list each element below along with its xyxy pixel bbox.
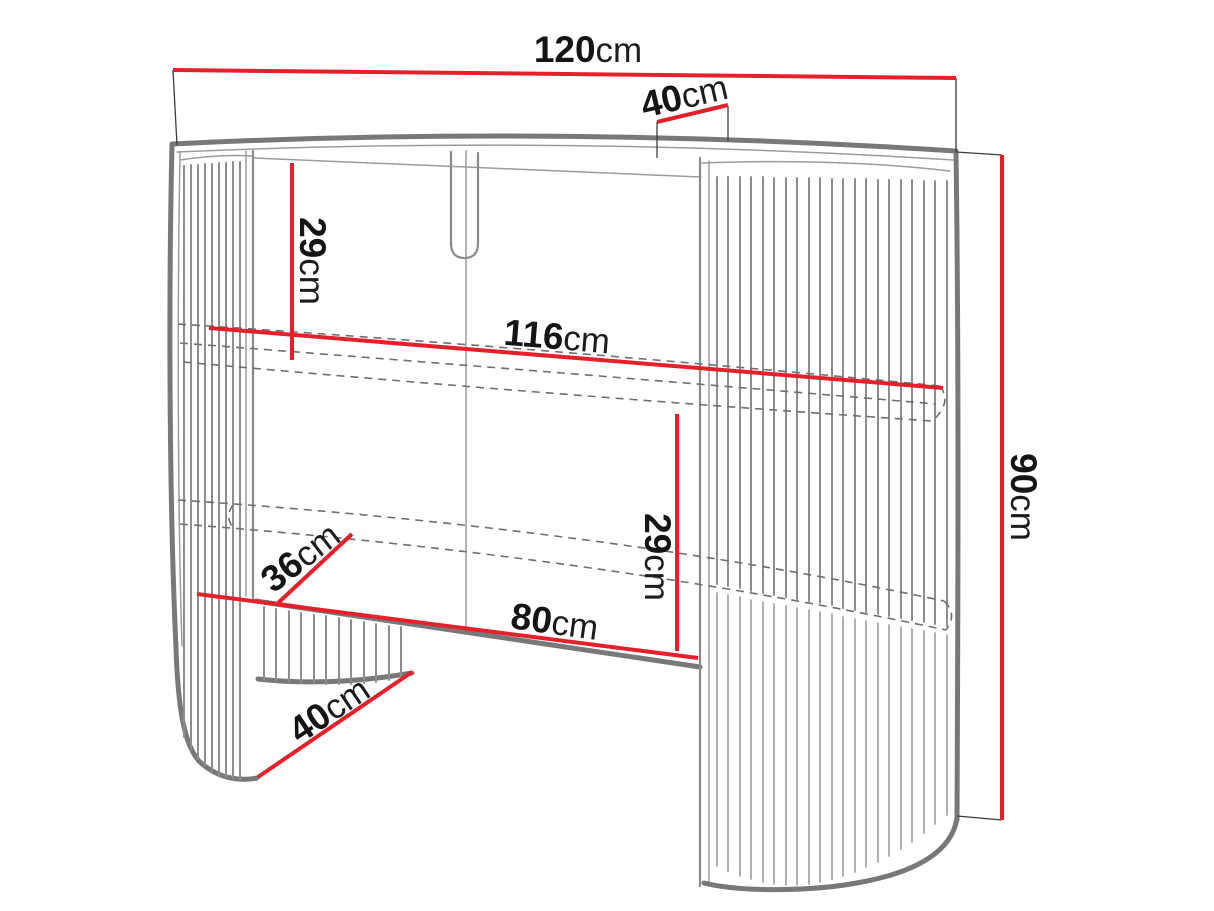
left-panel-inner-edge: [178, 152, 182, 646]
label-niche-height: 29cm: [637, 513, 678, 601]
label-top-width: 120cm: [534, 29, 642, 70]
right-panel-right-edge: [956, 152, 958, 820]
diagram-canvas: 120cm 40cm 29cm 116cm 29cm 36cm 80cm 40c…: [0, 0, 1214, 911]
left-panel-top-rail: [180, 156, 252, 161]
left-panel-slats: [184, 162, 240, 779]
label-overall-height: 90cm: [1003, 453, 1044, 541]
ext-top-width-left: [173, 70, 177, 145]
ext-height-top: [956, 152, 1002, 155]
label-shelf-width: 116cm: [502, 312, 611, 362]
right-panel-bottom-curve: [704, 818, 957, 890]
tabletop-inner-edge: [177, 145, 953, 160]
dim-line-top-width: [173, 70, 956, 78]
ext-height-bottom: [957, 816, 1002, 820]
left-panel-silhouette: [170, 144, 257, 779]
label-shelf-depth: 36cm: [253, 514, 347, 600]
furniture-outline: [170, 136, 958, 890]
furniture-technical-drawing: 120cm 40cm 29cm 116cm 29cm 36cm 80cm 40c…: [0, 0, 1214, 911]
right-panel-slats-lower: [717, 593, 947, 885]
right-panel-top-rail: [702, 162, 950, 171]
label-shelf-height: 29cm: [292, 217, 333, 305]
dim-line-niche-width: [197, 594, 698, 658]
tabletop-outer-edge: [172, 136, 956, 151]
